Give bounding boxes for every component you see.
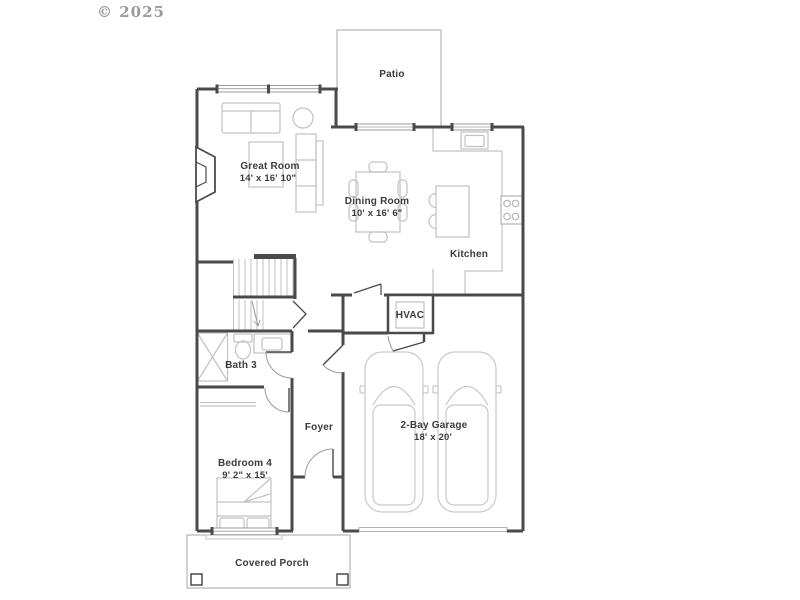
room-dimensions-dining-room: 10' x 16' 6" <box>351 208 402 219</box>
shower <box>198 333 228 381</box>
window <box>216 85 322 94</box>
stair-closet-door <box>293 301 306 328</box>
room-label-bedroom4: Bedroom 4 <box>218 458 272 469</box>
stove-icon <box>501 196 522 224</box>
room-label-kitchen: Kitchen <box>450 249 488 260</box>
room-dimensions-bedroom4: 9' 2" x 15' <box>222 470 268 481</box>
room-label-dining-room: Dining Room <box>345 196 409 207</box>
porch-post <box>191 574 202 585</box>
staircase <box>234 259 294 330</box>
stair-direction-arrow <box>252 301 260 326</box>
room-label-covered-porch: Covered Porch <box>235 558 309 569</box>
island-stool <box>429 215 436 229</box>
wall-hvac-stub <box>424 333 433 342</box>
window <box>206 527 282 539</box>
window <box>451 123 494 131</box>
window <box>355 123 416 131</box>
garage-side-door <box>388 336 424 351</box>
sofa <box>222 103 280 133</box>
kitchen-pocket-door <box>354 284 381 295</box>
room-label-foyer: Foyer <box>305 422 333 433</box>
floor-plan-page: © 2025 Patio Great Room 14' x 16' 10" Di… <box>0 0 800 600</box>
room-label-hvac: HVAC <box>396 310 424 321</box>
porch-post <box>337 574 348 585</box>
wall-stair <box>233 258 295 299</box>
closet-rod <box>200 403 256 407</box>
garage-door <box>359 528 507 532</box>
stair-header <box>254 254 296 259</box>
bath-vanity <box>254 334 291 353</box>
bath-door <box>266 352 292 378</box>
room-label-great-room: Great Room <box>240 161 299 172</box>
floor-plan: © 2025 Patio Great Room 14' x 16' 10" Di… <box>0 0 800 600</box>
bedroom-door <box>265 388 289 412</box>
room-label-garage: 2-Bay Garage <box>401 420 468 431</box>
room-dimensions-garage: 18' x 20' <box>414 432 452 443</box>
bed <box>217 478 271 532</box>
front-door <box>305 449 333 477</box>
copyright-text: © 2025 <box>97 3 165 21</box>
toilet-icon <box>234 334 252 359</box>
room-label-bath3: Bath 3 <box>225 360 257 371</box>
island-stool <box>429 194 436 208</box>
room-label-patio: Patio <box>379 69 404 80</box>
chaise-sectional <box>296 134 323 212</box>
fireplace <box>196 147 215 202</box>
round-chair <box>293 108 313 128</box>
room-dimensions-great-room: 14' x 16' 10" <box>240 173 297 184</box>
kitchen-island <box>429 186 469 237</box>
kitchen-counter <box>433 128 502 294</box>
garage-entry-door <box>323 345 343 373</box>
